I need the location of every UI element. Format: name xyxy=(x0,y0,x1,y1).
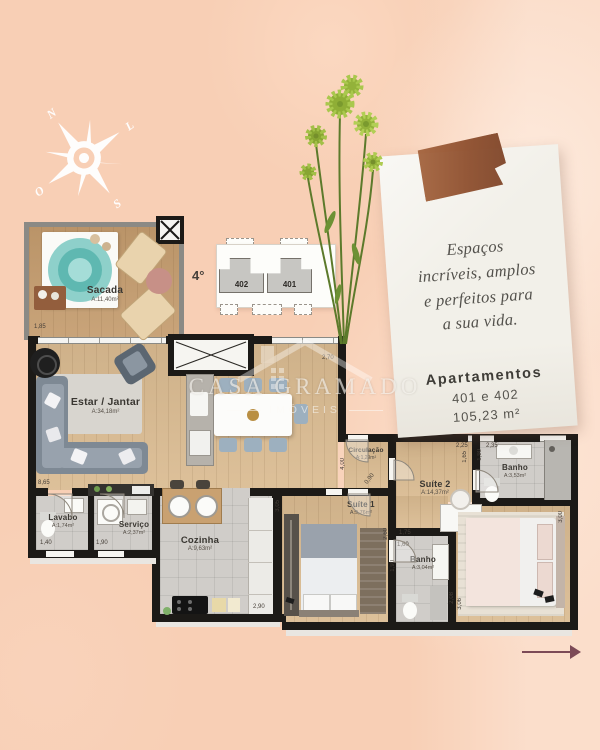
room-label-lavabo: LavaboA:1,74m² xyxy=(38,513,88,529)
stool xyxy=(196,480,210,489)
oven xyxy=(189,430,211,456)
pillow xyxy=(330,594,357,611)
dining-chair xyxy=(244,438,262,452)
bed-blanket xyxy=(301,524,357,558)
dim-dining: 2,70 xyxy=(322,355,334,361)
dim-circ-len: 4,00 xyxy=(340,458,346,470)
burner xyxy=(177,607,181,611)
dining-chair xyxy=(219,438,237,452)
dim-sacada: 1,85 xyxy=(34,324,46,330)
toilet xyxy=(402,594,418,602)
wall xyxy=(272,496,282,622)
cabinet-shelf xyxy=(248,594,272,595)
sacada-wall-left xyxy=(24,222,29,340)
dim-lavabo: 1,40 xyxy=(40,540,52,546)
dim-banho2-w: 2,25 xyxy=(456,443,468,449)
laundry-sink xyxy=(127,499,147,515)
key-plan-balcony xyxy=(252,304,282,315)
sill xyxy=(156,622,280,627)
bed-duvet xyxy=(466,518,520,606)
living-window xyxy=(272,337,338,344)
dim-living: 8,65 xyxy=(38,480,50,486)
dim-servico: 1,90 xyxy=(96,540,108,546)
cabinet-shelf xyxy=(248,562,272,563)
key-plan-floor-label: 4° xyxy=(192,268,204,283)
plate xyxy=(51,292,59,300)
dim-banho2-w2: 2,35 xyxy=(486,443,498,449)
pillar-core xyxy=(160,220,180,240)
plant xyxy=(94,486,100,492)
door-gap xyxy=(473,470,479,490)
cabinet-shelf xyxy=(248,530,272,531)
door-gap xyxy=(348,435,368,441)
burner xyxy=(188,607,192,611)
stool xyxy=(170,480,184,489)
dim-suite2-side: 3,00 xyxy=(558,511,564,523)
vanity-sink xyxy=(509,446,518,455)
dim-suite1: 3,05 xyxy=(275,500,281,512)
dim-suite2-side3: 3,06 xyxy=(457,598,463,610)
wall xyxy=(88,496,94,550)
counter-sink xyxy=(190,392,208,416)
dining-chair xyxy=(269,438,287,452)
hot-tub-core xyxy=(68,258,92,282)
floor-plan-poster: N L S O xyxy=(0,0,600,750)
plate xyxy=(38,290,47,299)
cutting-board xyxy=(212,598,226,612)
wall xyxy=(448,528,456,622)
wall xyxy=(254,336,272,344)
rug xyxy=(360,528,386,614)
burner xyxy=(177,600,181,604)
decor-tray xyxy=(132,486,150,494)
key-plan: 4° 402 401 xyxy=(190,236,340,320)
lavabo-window xyxy=(46,551,74,557)
toilet xyxy=(484,478,500,486)
wall xyxy=(282,622,578,630)
room-label-cozinha: CozinhaA:9,63m² xyxy=(168,535,232,554)
round-sink xyxy=(195,495,218,518)
shower-head xyxy=(549,446,555,452)
dining-chair xyxy=(219,378,237,392)
dim-banho1-side: 1,90 xyxy=(390,560,396,572)
cutting-board xyxy=(228,598,240,612)
dining-chair xyxy=(244,378,262,392)
room-label-banho-suite1: BanhoA:3,04m² xyxy=(402,555,444,571)
burner xyxy=(188,600,192,604)
servico-window xyxy=(98,551,124,557)
hanger-rail xyxy=(290,520,292,610)
room-label-servico: ServiçoA:2,37m² xyxy=(108,520,160,536)
wall xyxy=(570,434,578,630)
headboard xyxy=(299,610,359,617)
room-label-estar-jantar: Estar / JantarA:34,18m² xyxy=(58,396,153,416)
dim-banho1-w2: 1,60 xyxy=(397,542,409,548)
key-plan-balcony xyxy=(220,304,238,315)
round-table xyxy=(146,268,172,294)
round-sink xyxy=(168,495,191,518)
toilet-bowl xyxy=(485,486,499,502)
sill xyxy=(30,558,156,564)
dim-banho2-side: 1,65 xyxy=(462,451,468,463)
wall xyxy=(152,614,286,622)
dining-chair xyxy=(294,404,308,424)
pillow xyxy=(303,594,330,611)
pillow xyxy=(537,524,553,560)
sill xyxy=(286,630,572,636)
plant-pot xyxy=(102,242,111,251)
plant xyxy=(106,486,112,492)
plant-pot xyxy=(90,234,100,244)
round-chair-cushion xyxy=(37,355,57,375)
plant xyxy=(163,607,171,615)
wall xyxy=(338,336,346,442)
key-plan-balcony xyxy=(294,304,312,315)
room-label-banho-suite2: BanhoA:3,53m² xyxy=(492,463,538,479)
dim-banho2-side2: 1,90 xyxy=(477,449,483,461)
centerpiece xyxy=(247,409,259,421)
dim-suite2-side2: 2,08 xyxy=(449,592,455,604)
dining-chair xyxy=(269,378,287,392)
dim-banho1-w: 1,75 xyxy=(399,530,411,536)
dim-banho1-len: 2,60 xyxy=(383,528,389,540)
cooktop xyxy=(172,596,208,614)
toilet-bowl xyxy=(403,602,417,619)
room-label-sacada: SacadaA:11,40m² xyxy=(70,285,140,304)
door-gap xyxy=(389,540,395,562)
wall xyxy=(28,488,48,496)
kitchen-cabinets xyxy=(248,498,273,614)
door-gap xyxy=(326,489,342,495)
dim-cozinha: 2,90 xyxy=(253,604,265,610)
headboard xyxy=(556,516,565,608)
shaft-core xyxy=(174,340,248,370)
room-label-circulacao: CirculaçãoA:1,29m² xyxy=(342,447,390,461)
wall xyxy=(472,434,480,500)
door-gap xyxy=(348,489,368,495)
sink xyxy=(64,498,84,513)
room-label-suite2: Suíte 2A:14,37m² xyxy=(406,479,464,497)
note-card-script: Espaços incríveis, amplos e perfeitos pa… xyxy=(384,230,570,341)
door-gap xyxy=(389,458,395,480)
room-label-suite1: Suíte 1A:9,76m² xyxy=(334,500,388,516)
sacada-wall-right xyxy=(179,244,184,338)
shower-tray xyxy=(430,586,447,620)
